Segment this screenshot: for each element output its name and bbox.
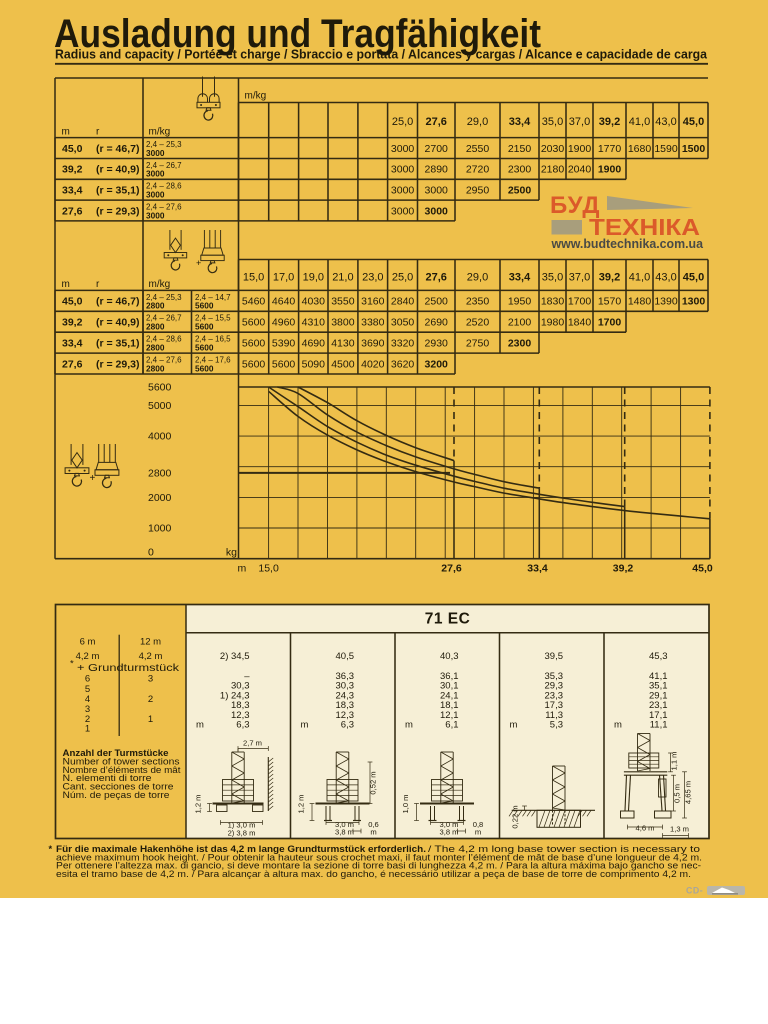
svg-text:4690: 4690 — [302, 337, 326, 349]
svg-text:1900: 1900 — [598, 164, 622, 176]
svg-text:11,1: 11,1 — [650, 720, 668, 731]
svg-text:39,2: 39,2 — [613, 563, 634, 575]
svg-text:1770: 1770 — [598, 143, 622, 155]
svg-text:2040: 2040 — [568, 164, 592, 176]
svg-text:m: m — [238, 563, 247, 575]
svg-text:(r = 40,9): (r = 40,9) — [96, 317, 139, 329]
svg-text:1000: 1000 — [148, 523, 172, 535]
svg-text:(r = 46,7): (r = 46,7) — [96, 296, 139, 308]
svg-text:1500: 1500 — [682, 143, 706, 155]
svg-text:1390: 1390 — [654, 296, 678, 308]
svg-text:1570: 1570 — [598, 296, 622, 308]
svg-text:m: m — [510, 720, 518, 731]
svg-text:esita el tramo base de 4,2 m.: esita el tramo base de 4,2 m. / Para alc… — [56, 869, 691, 879]
svg-text:1700: 1700 — [598, 317, 622, 329]
svg-text:3000: 3000 — [146, 210, 165, 220]
svg-text:2930: 2930 — [425, 337, 449, 349]
svg-text:37,0: 37,0 — [569, 272, 590, 284]
svg-text:4030: 4030 — [302, 296, 326, 308]
svg-text:1900: 1900 — [568, 143, 592, 155]
svg-text:1680: 1680 — [628, 143, 652, 155]
svg-text:*: * — [49, 844, 53, 854]
svg-text:2520: 2520 — [466, 317, 490, 329]
svg-text:3620: 3620 — [391, 358, 415, 370]
svg-text:33,4: 33,4 — [509, 116, 531, 128]
svg-text:2100: 2100 — [508, 317, 532, 329]
svg-text:4130: 4130 — [331, 337, 355, 349]
svg-text:43,0: 43,0 — [655, 272, 676, 284]
svg-text:41,0: 41,0 — [629, 272, 650, 284]
svg-text:3000: 3000 — [391, 185, 415, 197]
svg-text:Radius and capacity / Portée e: Radius and capacity / Portée et charge /… — [55, 46, 708, 61]
svg-text:45,0: 45,0 — [683, 116, 704, 128]
svg-text:5,3: 5,3 — [550, 720, 563, 731]
svg-text:2720: 2720 — [466, 164, 490, 176]
svg-text:43,0: 43,0 — [655, 116, 676, 128]
svg-text:4,6 m: 4,6 m — [636, 824, 655, 833]
svg-text:5600: 5600 — [242, 358, 266, 370]
svg-text:2890: 2890 — [425, 164, 449, 176]
svg-text:1590: 1590 — [654, 143, 678, 155]
svg-text:21,0: 21,0 — [332, 272, 353, 284]
svg-text:33,4: 33,4 — [509, 272, 531, 284]
svg-text:(r = 35,1): (r = 35,1) — [96, 337, 139, 349]
svg-text:39,2: 39,2 — [62, 164, 83, 176]
svg-text:40,5: 40,5 — [336, 651, 355, 662]
svg-text:5390: 5390 — [272, 337, 296, 349]
svg-text:71 EC: 71 EC — [425, 611, 471, 628]
svg-text:4,2 m: 4,2 m — [139, 651, 163, 662]
svg-text:2180: 2180 — [541, 164, 565, 176]
svg-text:5090: 5090 — [302, 358, 326, 370]
svg-text:1,2 m: 1,2 m — [194, 795, 203, 814]
svg-text:2840: 2840 — [391, 296, 415, 308]
svg-text:4310: 4310 — [302, 317, 326, 329]
svg-text:m: m — [614, 720, 622, 731]
svg-text:3380: 3380 — [361, 317, 385, 329]
svg-text:(r = 29,3): (r = 29,3) — [96, 205, 139, 217]
svg-text:6 m: 6 m — [80, 637, 96, 648]
svg-text:5600: 5600 — [272, 358, 296, 370]
svg-text:33,4: 33,4 — [527, 563, 548, 575]
svg-text:39,2: 39,2 — [599, 116, 620, 128]
svg-text:2,7 m: 2,7 m — [243, 739, 262, 748]
svg-text:35,0: 35,0 — [542, 272, 563, 284]
svg-text:45,0: 45,0 — [62, 296, 83, 308]
svg-text:6: 6 — [85, 673, 90, 684]
svg-text:5600: 5600 — [195, 322, 214, 332]
svg-text:+ Grundturmstück: + Grundturmstück — [77, 663, 180, 674]
svg-text:17,0: 17,0 — [273, 272, 294, 284]
svg-text:m: m — [405, 720, 413, 731]
svg-text:5000: 5000 — [148, 400, 172, 412]
svg-text:25,0: 25,0 — [392, 272, 413, 284]
svg-text:27,6: 27,6 — [62, 205, 83, 217]
svg-text:m: m — [62, 279, 70, 290]
svg-text:5600: 5600 — [242, 317, 266, 329]
svg-text:(r = 35,1): (r = 35,1) — [96, 185, 139, 197]
svg-text:6,1: 6,1 — [445, 720, 458, 731]
svg-text:27,6: 27,6 — [425, 116, 446, 128]
svg-text:m: m — [475, 828, 481, 837]
svg-text:27,6: 27,6 — [441, 563, 462, 575]
svg-text:2: 2 — [148, 694, 153, 705]
svg-text:29,0: 29,0 — [467, 116, 488, 128]
svg-text:m: m — [62, 127, 70, 138]
svg-text:1840: 1840 — [568, 317, 592, 329]
svg-text:1,0 m: 1,0 m — [401, 795, 410, 814]
svg-text:3690: 3690 — [361, 337, 385, 349]
svg-text:2150: 2150 — [508, 143, 532, 155]
svg-text:45,0: 45,0 — [62, 143, 83, 155]
svg-text:m/kg: m/kg — [149, 279, 171, 290]
svg-text:2800: 2800 — [146, 342, 165, 352]
svg-text:6,3: 6,3 — [341, 720, 354, 731]
svg-text:27,6: 27,6 — [425, 272, 446, 284]
svg-text:2550: 2550 — [466, 143, 490, 155]
svg-text:m: m — [196, 720, 204, 731]
svg-text:3320: 3320 — [391, 337, 415, 349]
svg-text:5600: 5600 — [148, 382, 172, 394]
svg-text:4960: 4960 — [272, 317, 296, 329]
svg-text:2) 3,8 m: 2) 3,8 m — [228, 828, 256, 837]
svg-text:4020: 4020 — [361, 358, 385, 370]
svg-text:5600: 5600 — [195, 301, 214, 311]
svg-text:www.budtechnika.com.ua: www.budtechnika.com.ua — [551, 236, 704, 251]
svg-text:3200: 3200 — [425, 358, 449, 370]
svg-text:3000: 3000 — [425, 205, 449, 217]
svg-text:5600: 5600 — [195, 363, 214, 373]
svg-text:39,5: 39,5 — [545, 651, 564, 662]
svg-text:1950: 1950 — [508, 296, 532, 308]
svg-text:3,8 m: 3,8 m — [440, 828, 459, 837]
svg-text:1980: 1980 — [541, 317, 565, 329]
svg-text:3,8 m: 3,8 m — [335, 828, 354, 837]
svg-text:33,4: 33,4 — [62, 337, 83, 349]
svg-text:2300: 2300 — [508, 164, 532, 176]
svg-text:5600: 5600 — [195, 342, 214, 352]
svg-text:3550: 3550 — [331, 296, 355, 308]
svg-text:m: m — [301, 720, 309, 731]
svg-text:4500: 4500 — [331, 358, 355, 370]
svg-text:2) 34,5: 2) 34,5 — [220, 651, 250, 662]
svg-text:2950: 2950 — [466, 185, 490, 197]
svg-text:3000: 3000 — [146, 148, 165, 158]
svg-text:(r = 40,9): (r = 40,9) — [96, 164, 139, 176]
svg-text:6,3: 6,3 — [236, 720, 249, 731]
svg-text:25,0: 25,0 — [392, 116, 413, 128]
svg-text:39,2: 39,2 — [62, 317, 83, 329]
svg-text:2500: 2500 — [508, 185, 532, 197]
svg-text:5460: 5460 — [242, 296, 266, 308]
svg-text:3: 3 — [148, 673, 153, 684]
svg-text:3050: 3050 — [391, 317, 415, 329]
svg-text:2500: 2500 — [425, 296, 449, 308]
svg-text:(r = 46,7): (r = 46,7) — [96, 143, 139, 155]
svg-text:3000: 3000 — [391, 164, 415, 176]
svg-text:3000: 3000 — [425, 185, 449, 197]
svg-text:45,0: 45,0 — [692, 563, 713, 575]
svg-text:2690: 2690 — [425, 317, 449, 329]
svg-text:3000: 3000 — [391, 143, 415, 155]
svg-text:3160: 3160 — [361, 296, 385, 308]
svg-text:3000: 3000 — [146, 169, 165, 179]
svg-text:3800: 3800 — [331, 317, 355, 329]
svg-text:27,6: 27,6 — [62, 358, 83, 370]
svg-text:2000: 2000 — [148, 492, 172, 504]
svg-text:2800: 2800 — [146, 301, 165, 311]
svg-text:m: m — [370, 828, 376, 837]
svg-text:1: 1 — [148, 714, 153, 725]
svg-text:3000: 3000 — [391, 205, 415, 217]
svg-text:kg: kg — [226, 547, 237, 559]
svg-text:m/kg: m/kg — [245, 91, 267, 102]
svg-text:2030: 2030 — [541, 143, 565, 155]
svg-text:23,0: 23,0 — [362, 272, 383, 284]
svg-text:m/kg: m/kg — [149, 127, 171, 138]
svg-text:33,4: 33,4 — [62, 185, 83, 197]
svg-text:1830: 1830 — [541, 296, 565, 308]
svg-text:2800: 2800 — [148, 468, 172, 480]
svg-text:2800: 2800 — [146, 363, 165, 373]
svg-text:29,0: 29,0 — [467, 272, 488, 284]
svg-text:37,0: 37,0 — [569, 116, 590, 128]
svg-text:Núm. de peças de torre: Núm. de peças de torre — [63, 789, 170, 800]
svg-text:1300: 1300 — [682, 296, 706, 308]
svg-text:4000: 4000 — [148, 431, 172, 443]
svg-text:0,22 m: 0,22 m — [511, 805, 520, 828]
svg-text:12 m: 12 m — [140, 637, 161, 648]
svg-text:*: * — [70, 659, 74, 670]
svg-text:1,3 m: 1,3 m — [670, 824, 689, 833]
svg-text:5600: 5600 — [242, 337, 266, 349]
svg-text:CD-: CD- — [686, 886, 703, 896]
svg-text:39,2: 39,2 — [599, 272, 620, 284]
svg-text:45,0: 45,0 — [683, 272, 704, 284]
svg-text:45,3: 45,3 — [649, 651, 668, 662]
svg-text:2350: 2350 — [466, 296, 490, 308]
svg-text:1700: 1700 — [568, 296, 592, 308]
svg-text:19,0: 19,0 — [303, 272, 324, 284]
svg-text:1,2 m: 1,2 m — [297, 795, 306, 814]
svg-text:2700: 2700 — [425, 143, 449, 155]
svg-text:2800: 2800 — [146, 322, 165, 332]
svg-text:2300: 2300 — [508, 337, 532, 349]
svg-text:4640: 4640 — [272, 296, 296, 308]
svg-text:41,0: 41,0 — [629, 116, 650, 128]
svg-text:1480: 1480 — [628, 296, 652, 308]
svg-text:15,0: 15,0 — [258, 563, 279, 575]
svg-text:1: 1 — [85, 724, 90, 735]
svg-text:35,0: 35,0 — [542, 116, 563, 128]
svg-text:40,3: 40,3 — [440, 651, 459, 662]
svg-text:2750: 2750 — [466, 337, 490, 349]
svg-text:0: 0 — [148, 547, 154, 559]
svg-text:(r = 29,3): (r = 29,3) — [96, 358, 139, 370]
svg-text:15,0: 15,0 — [243, 272, 264, 284]
svg-text:4,2 m: 4,2 m — [76, 651, 100, 662]
svg-text:3000: 3000 — [146, 190, 165, 200]
